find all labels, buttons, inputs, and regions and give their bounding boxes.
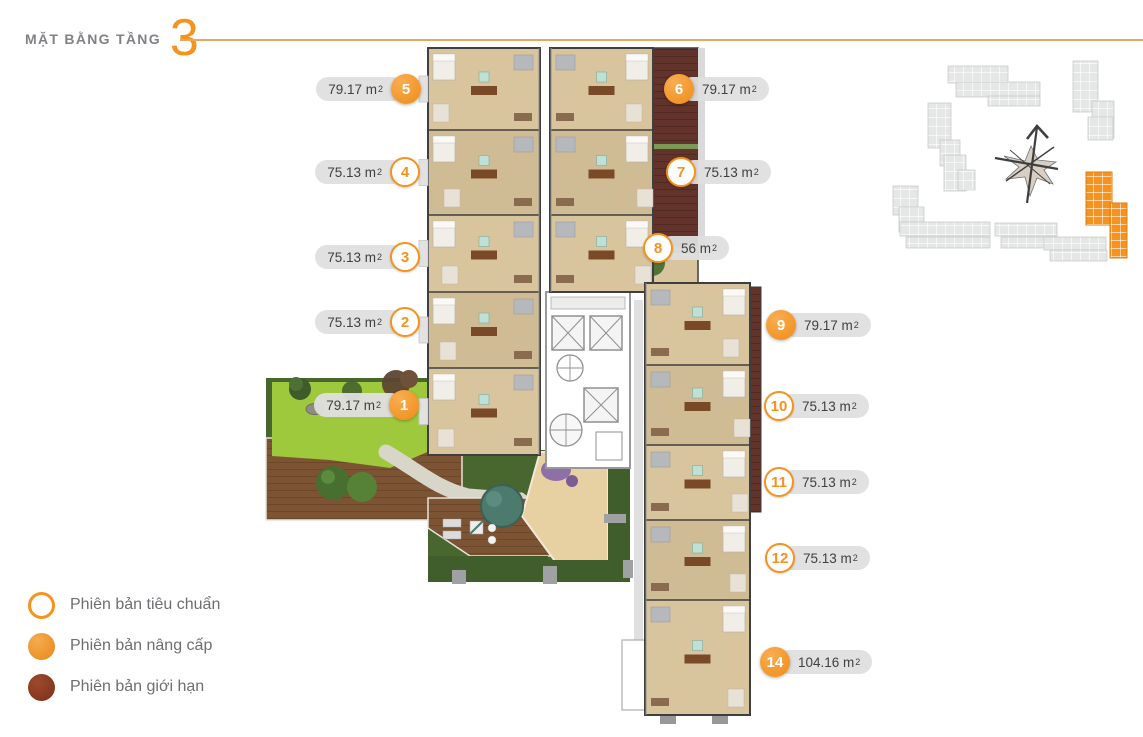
unit-badge-1[interactable]: 79.17 m21 [314, 390, 419, 420]
unit-number: 5 [391, 74, 421, 104]
legend-swatch-limited [28, 674, 55, 701]
unit-badge-14[interactable]: 14104.16 m2 [760, 647, 872, 677]
unit-number: 4 [390, 157, 420, 187]
elevator-core [546, 292, 630, 468]
unit-number: 14 [760, 647, 790, 677]
unit-badge-4[interactable]: 75.13 m24 [315, 157, 420, 187]
unit-number: 2 [390, 307, 420, 337]
unit-number: 12 [765, 543, 795, 573]
unit-badge-6[interactable]: 679.17 m2 [664, 74, 769, 104]
unit-number: 7 [666, 157, 696, 187]
legend-swatch-standard [28, 592, 55, 619]
unit-badge-5[interactable]: 79.17 m25 [316, 74, 421, 104]
compass-icon [995, 126, 1058, 203]
unit-badge-7[interactable]: 775.13 m2 [666, 157, 771, 187]
unit-badge-10[interactable]: 1075.13 m2 [764, 391, 869, 421]
legend-label: Phiên bản giới hạn [70, 678, 204, 696]
unit-badge-12[interactable]: 1275.13 m2 [765, 543, 870, 573]
legend-item-limited: Phiên bản giới hạn [28, 673, 220, 701]
unit-number: 3 [390, 242, 420, 272]
floor-plan-page: MẶT BẰNG TẦNG 3 [0, 0, 1143, 737]
legend-item-standard: Phiên bản tiêu chuẩn [28, 591, 220, 619]
legend-item-upgraded: Phiên bản nâng cấp [28, 632, 220, 660]
unit-badge-9[interactable]: 979.17 m2 [766, 310, 871, 340]
legend-label: Phiên bản nâng cấp [70, 637, 212, 655]
unit-number: 8 [643, 233, 673, 263]
legend-label: Phiên bản tiêu chuẩn [70, 596, 220, 614]
unit-badge-3[interactable]: 75.13 m23 [315, 242, 420, 272]
unit-badge-2[interactable]: 75.13 m22 [315, 307, 420, 337]
unit-number: 1 [389, 390, 419, 420]
unit-number: 11 [764, 467, 794, 497]
unit-number: 6 [664, 74, 694, 104]
unit-number: 10 [764, 391, 794, 421]
legend-swatch-upgraded [28, 633, 55, 660]
unit-badge-11[interactable]: 1175.13 m2 [764, 467, 869, 497]
unit-area-label: 104.16 m2 [776, 650, 872, 674]
unit-number: 9 [766, 310, 796, 340]
legend: Phiên bản tiêu chuẩnPhiên bản nâng cấpPh… [28, 591, 220, 714]
unit-badge-8[interactable]: 856 m2 [643, 233, 729, 263]
